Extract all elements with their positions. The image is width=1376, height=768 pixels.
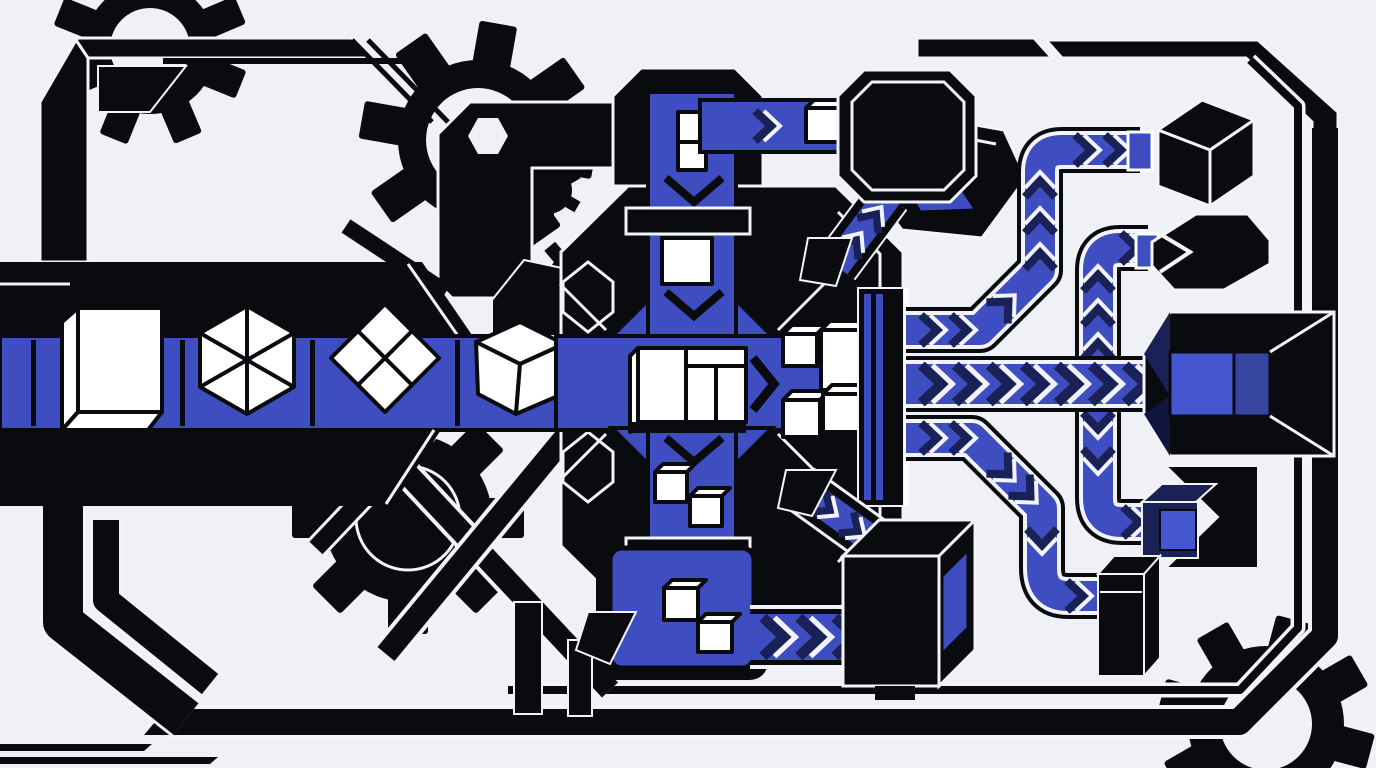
octagon-nut	[838, 70, 976, 202]
funnel-mouth-dim	[1234, 352, 1270, 416]
pipe-middle	[906, 365, 1170, 403]
hopper-cube	[698, 614, 740, 652]
illustration-stage	[0, 0, 1376, 768]
machine-right-wall	[858, 288, 909, 506]
factory-illustration	[0, 0, 1376, 768]
channel-clamp-top	[626, 208, 750, 234]
conveyor-item-tilted-cube	[476, 322, 564, 414]
destination-slab	[1098, 556, 1160, 676]
falling-cube	[690, 488, 730, 526]
conveyor-housing-bottom	[0, 428, 442, 506]
pipe-cap	[1128, 132, 1152, 170]
frame-top-bar-mid	[917, 38, 1052, 58]
channel-white-square	[662, 238, 712, 284]
support-leg-1	[514, 602, 542, 714]
navy-cube-face	[1160, 510, 1196, 550]
funnel-mouth-bright	[1170, 352, 1234, 416]
destination-funnel-large	[1144, 312, 1334, 456]
conveyor-item-box	[62, 308, 162, 430]
frame-top-bar-left	[62, 38, 374, 58]
crusher-box-front	[843, 556, 939, 686]
machine-center-panel	[630, 348, 746, 433]
frame-rail-1	[0, 744, 152, 751]
hopper-cube	[664, 580, 706, 620]
frame-rail-2	[0, 757, 218, 764]
